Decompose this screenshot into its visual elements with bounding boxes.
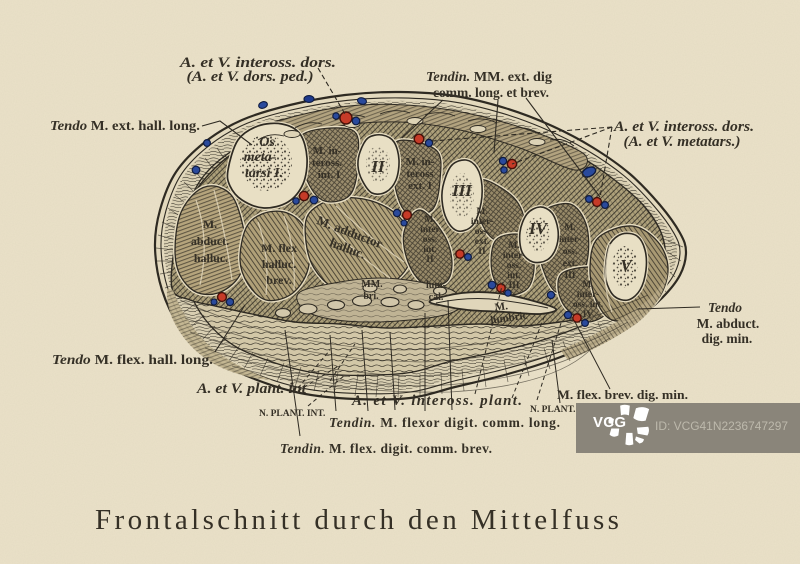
- svg-text:Tendo M. flex. hall. long.: Tendo M. flex. hall. long.: [52, 353, 213, 368]
- svg-text:N. PLANT. INT.: N. PLANT. INT.: [259, 409, 325, 419]
- svg-text:IV: IV: [583, 310, 594, 320]
- svg-text:int. I: int. I: [318, 169, 341, 181]
- svg-text:oss.: oss.: [475, 227, 490, 237]
- svg-text:M. in-: M. in-: [406, 156, 435, 168]
- svg-text:halluc.: halluc.: [194, 251, 228, 265]
- svg-text:oss. int.: oss. int.: [573, 300, 603, 310]
- svg-text:Os: Os: [259, 135, 275, 150]
- svg-text:A. et V. inteross. dors.: A. et V. inteross. dors.: [613, 119, 754, 135]
- svg-text:Tendin. MM. ext. dig: Tendin. MM. ext. dig: [426, 69, 552, 84]
- svg-text:ext. I: ext. I: [408, 180, 432, 192]
- svg-text:II: II: [370, 157, 386, 176]
- svg-text:ID: VCG41N2236747297: ID: VCG41N2236747297: [655, 419, 788, 433]
- svg-text:brev.: brev.: [266, 273, 291, 287]
- svg-text:inter-: inter-: [559, 235, 581, 245]
- svg-text:A. et V. plant. int: A. et V. plant. int: [196, 381, 307, 397]
- svg-text:Tendo: Tendo: [708, 300, 742, 315]
- svg-text:Tendin. M. flexor digit. comm.: Tendin. M. flexor digit. comm. long.: [329, 415, 560, 430]
- svg-text:V: V: [620, 256, 633, 275]
- svg-text:int.: int.: [507, 271, 520, 281]
- svg-text:M.: M.: [203, 217, 217, 231]
- svg-text:II: II: [478, 247, 486, 257]
- svg-text:comm. long. et brev.: comm. long. et brev.: [433, 85, 549, 100]
- svg-text:ext.: ext.: [563, 259, 578, 269]
- svg-text:M.: M.: [564, 223, 575, 233]
- svg-text:M. flex: M. flex: [261, 241, 297, 255]
- svg-text:IV: IV: [528, 219, 549, 238]
- svg-text:oss.: oss.: [423, 235, 438, 245]
- svg-text:inter: inter: [420, 225, 440, 235]
- svg-text:M. abduct.: M. abduct.: [697, 316, 760, 331]
- svg-text:III: III: [508, 281, 519, 291]
- svg-text:meta-: meta-: [244, 150, 277, 165]
- svg-text:halluc.: halluc.: [262, 257, 296, 271]
- svg-text:III: III: [451, 181, 473, 200]
- svg-text:M.: M.: [508, 241, 519, 251]
- svg-text:oss.: oss.: [507, 261, 522, 271]
- svg-text:M.: M.: [476, 207, 487, 217]
- svg-text:inter-: inter-: [471, 217, 493, 227]
- svg-text:dig. min.: dig. min.: [702, 331, 753, 346]
- svg-text:lum-: lum-: [426, 280, 446, 291]
- svg-text:(A. et V. dors. ped.): (A. et V. dors. ped.): [187, 69, 314, 85]
- svg-text:teross.: teross.: [312, 157, 342, 169]
- svg-text:bri.: bri.: [363, 291, 379, 302]
- svg-text:teross: teross: [406, 168, 434, 180]
- svg-text:M. in-: M. in-: [313, 145, 342, 157]
- svg-text:Tendin. M. flex. digit. comm.: Tendin. M. flex. digit. comm. brev.: [280, 441, 492, 456]
- svg-text:inter-: inter-: [577, 290, 599, 300]
- svg-text:int.: int.: [423, 245, 436, 255]
- svg-text:III: III: [564, 271, 575, 281]
- svg-text:II: II: [426, 255, 434, 265]
- svg-text:oss.: oss.: [563, 247, 578, 257]
- svg-text:abduct.: abduct.: [191, 234, 229, 248]
- svg-text:tarsi I.: tarsi I.: [245, 166, 283, 181]
- svg-text:ext.: ext.: [475, 237, 490, 247]
- svg-text:MM.: MM.: [361, 279, 383, 290]
- svg-text:Frontalschnitt durch den Mitte: Frontalschnitt durch den Mittelfuss: [95, 504, 622, 536]
- svg-text:inter-: inter-: [503, 251, 525, 261]
- svg-text:(A. et V. metatars.): (A. et V. metatars.): [624, 134, 741, 150]
- svg-text:Tendo M. ext. hall. long.: Tendo M. ext. hall. long.: [50, 119, 200, 134]
- svg-text:M.: M.: [424, 215, 435, 225]
- svg-text:A. et V. inteross. plant.: A. et V. inteross. plant.: [351, 393, 522, 409]
- svg-text:M. flex. brev. dig. min.: M. flex. brev. dig. min.: [557, 388, 688, 402]
- svg-text:cal.: cal.: [429, 292, 444, 303]
- svg-text:M.: M.: [582, 280, 593, 290]
